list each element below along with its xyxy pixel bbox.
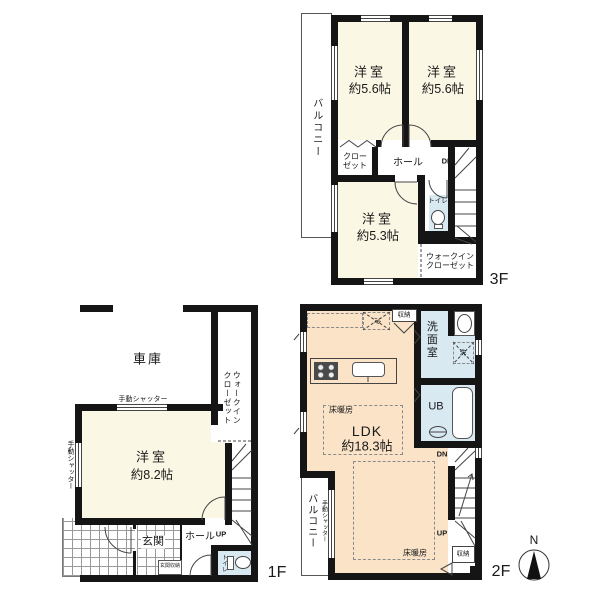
stairs-3f (455, 190, 476, 226)
shutter-label: 手動シャッター (66, 441, 74, 490)
toilet-label: トイレ (428, 197, 448, 204)
washbasin-icon (457, 314, 472, 333)
window (331, 46, 338, 100)
stairs-up-label: UP (437, 530, 447, 539)
wall-segment (414, 385, 421, 448)
room-name: 洋室 (354, 66, 386, 81)
bath-basin-icon (429, 426, 447, 438)
shutter-window (75, 443, 82, 487)
north-needle-icon (527, 551, 541, 579)
window (476, 50, 483, 100)
floor-heating-label: 床暖房 (403, 548, 427, 557)
wall-segment (372, 147, 378, 177)
stairs-1f (232, 478, 252, 511)
wall-segment (331, 15, 483, 22)
wall-segment (418, 237, 483, 244)
toilet-icon (431, 210, 445, 225)
room-size: 約8.2帖 (131, 468, 173, 482)
ldk-name: LDK (352, 423, 382, 439)
wall-segment (211, 545, 258, 551)
compass-north-label: N (530, 534, 539, 548)
wall-segment (328, 573, 482, 580)
room-name: 洋室 (362, 213, 394, 228)
toilet-icon (235, 556, 251, 569)
wall-segment (300, 304, 482, 311)
entrance-porch (62, 518, 135, 577)
bathtub-icon (452, 387, 473, 439)
kitchen-sink-icon (352, 362, 385, 377)
wall-segment (300, 471, 335, 478)
toilet-label: トイレ (220, 554, 227, 572)
floor-heating-zone (353, 461, 435, 560)
wall-segment (431, 140, 483, 147)
wall-segment (414, 441, 482, 448)
storage-label: 収納 (457, 550, 470, 557)
shutter-window (328, 490, 335, 558)
wall-segment (75, 518, 205, 525)
wall-segment (225, 518, 232, 525)
bifold-door-icon (340, 141, 376, 148)
wic-label: ウォークイン クローゼット (223, 371, 241, 425)
door-arc-icon (190, 555, 211, 576)
storage-label: 収納 (398, 311, 411, 318)
stairs-3f (455, 148, 476, 244)
post (470, 566, 477, 573)
floor-label-1f: 1F (268, 564, 287, 582)
compass (519, 550, 549, 580)
wall-segment (300, 304, 307, 478)
entrance-storage-label: 玄関収納 (160, 564, 180, 570)
wall-segment (80, 305, 113, 312)
wall-segment (331, 278, 483, 285)
stairs-dn-label: DN (442, 158, 453, 167)
window (361, 15, 390, 22)
closet-label: クロー ゼット (343, 152, 367, 170)
ldk-size: 約18.3帖 (341, 440, 392, 455)
wall-segment (180, 518, 182, 560)
wall-segment (331, 175, 395, 182)
wall-segment (251, 305, 258, 582)
floor-heating-label: 床暖房 (329, 405, 353, 414)
room-name: 洋室 (427, 66, 459, 81)
stove-icon (314, 362, 338, 380)
hall-label: ホール (185, 531, 215, 543)
window (300, 412, 307, 432)
window (300, 332, 307, 352)
washroom-label: 洗面室 (425, 321, 438, 360)
stairs-up-label: UP (216, 531, 226, 540)
toilet-icon (227, 556, 234, 570)
floor-label-3f: 3F (490, 271, 509, 289)
stairs-dn-label: DN (437, 451, 448, 460)
room-name: 洋室 (136, 451, 168, 466)
wall-segment (376, 140, 381, 147)
room-size: 約5.3帖 (357, 229, 399, 243)
wall-segment (414, 378, 475, 385)
balcony-label: バルコニー (310, 98, 322, 158)
unit-bath-label: UB (428, 401, 443, 414)
wall-segment (80, 575, 258, 582)
entrance-label: 玄関 (141, 536, 165, 549)
wall-segment (133, 518, 136, 529)
wall-segment (448, 466, 455, 520)
room-size: 約5.6帖 (422, 82, 464, 96)
toilet-icon (434, 224, 443, 229)
floorplan-canvas: バルコニー 洋室 約5.6帖 洋室 約5.6帖 クロー ゼット ホール DN ト… (0, 0, 600, 600)
floor-label-2f: 2F (492, 563, 511, 581)
balcony-label: バルコニー (305, 494, 317, 549)
fridge-label: 冷 (372, 318, 380, 325)
wall-segment (418, 175, 425, 243)
wall-segment (133, 551, 136, 577)
window (475, 340, 482, 355)
wall-segment (225, 443, 232, 520)
wall-segment (403, 140, 409, 147)
window-tick (294, 334, 299, 434)
wall-segment (211, 545, 218, 577)
washer-label: 洗 (460, 349, 467, 356)
stairs-1f (232, 444, 252, 545)
compass-circle (519, 550, 549, 580)
room-size: 約5.6帖 (349, 82, 391, 96)
kitchen-cupboard (307, 313, 363, 328)
window (475, 448, 482, 458)
shutter-label: 手動シャッター (320, 500, 327, 542)
wall-segment (402, 22, 409, 147)
wall-segment (183, 305, 258, 312)
window (364, 278, 393, 285)
wic-label: ウォークイン クローゼット (426, 252, 474, 270)
window (429, 15, 452, 22)
shutter-window (117, 404, 167, 411)
garage-label: 車庫 (133, 353, 163, 368)
window (331, 185, 338, 232)
hall-label: ホール (393, 157, 423, 169)
shutter-label: 手動シャッター (119, 396, 168, 404)
